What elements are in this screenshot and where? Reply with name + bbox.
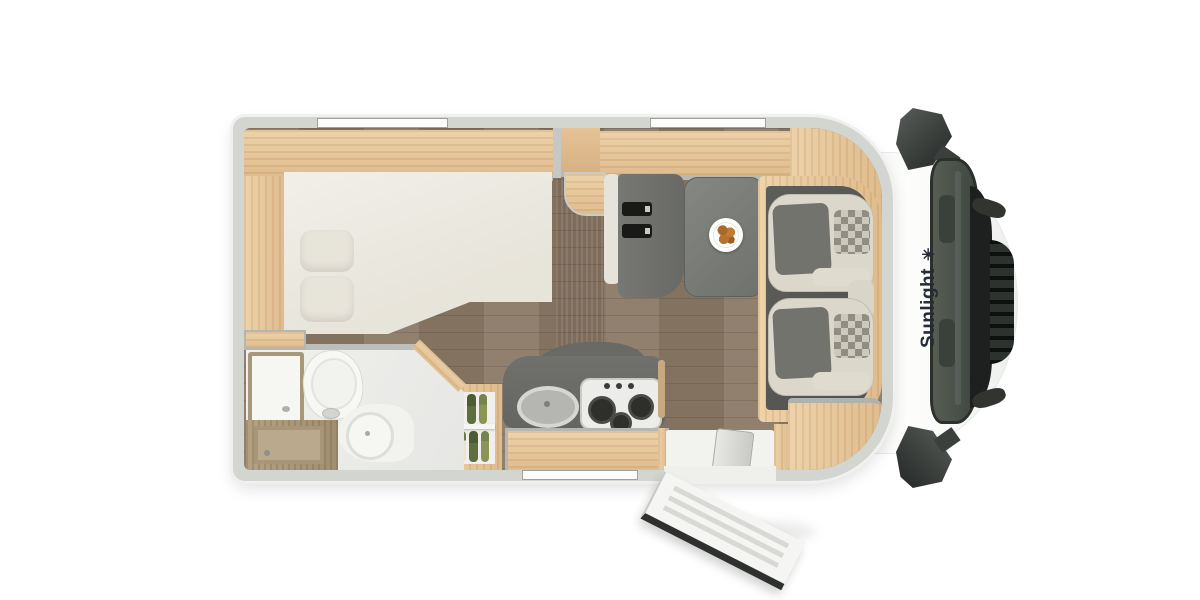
overhead-cabinet-dinette bbox=[600, 131, 790, 180]
seat-left-back-panel bbox=[772, 203, 832, 276]
kitchen-window bbox=[522, 470, 638, 480]
shower-drain bbox=[264, 450, 270, 456]
sink-drain bbox=[544, 401, 550, 407]
bed-pillow-2 bbox=[300, 276, 354, 322]
bathroom-door-handle bbox=[282, 406, 290, 412]
floorplan-canvas: Sunlight ✳ bbox=[0, 0, 1200, 600]
brand-lettering: Sunlight ✳ bbox=[917, 248, 941, 348]
bed-pillow-1 bbox=[300, 230, 354, 272]
interior-floor bbox=[244, 128, 882, 470]
overhead-locker-small bbox=[561, 128, 600, 177]
toilet-seat bbox=[311, 358, 357, 410]
kale-2 bbox=[469, 431, 478, 462]
windshield-reflection bbox=[955, 171, 961, 405]
brand-label: Sunlight bbox=[918, 268, 940, 348]
shower-tray bbox=[254, 426, 324, 464]
dashboard-hint-1 bbox=[939, 195, 955, 243]
herb-1 bbox=[479, 394, 487, 424]
cowl-panel bbox=[970, 186, 992, 408]
tv-shelf-bracket bbox=[564, 172, 606, 216]
seatbelt-1 bbox=[622, 202, 652, 216]
sunlight-flower-logo-icon: ✳ bbox=[919, 247, 939, 261]
round-sink bbox=[517, 386, 579, 428]
seat-right-headrest-checker bbox=[834, 314, 870, 358]
seatbelt-2 bbox=[622, 224, 652, 238]
counter-support-pole bbox=[658, 360, 665, 418]
hob-knob-1 bbox=[604, 383, 610, 389]
washbasin-drain bbox=[365, 431, 370, 436]
kitchen-drawer bbox=[505, 428, 669, 470]
partition-wall-bed bbox=[553, 128, 561, 178]
dashboard-hint-2 bbox=[939, 319, 955, 367]
seat-left-headrest-checker bbox=[834, 210, 870, 254]
hob-knob-2 bbox=[616, 383, 622, 389]
bathroom-vanity-corner bbox=[244, 330, 306, 350]
entry-door-open bbox=[640, 471, 805, 590]
entry-step bbox=[711, 428, 754, 470]
toilet-flush-button bbox=[322, 408, 340, 419]
rear-wardrobe-band bbox=[244, 176, 289, 345]
seat-right-back-panel bbox=[772, 307, 832, 380]
washbasin bbox=[346, 412, 394, 460]
kale-1 bbox=[467, 394, 476, 424]
entry-partition-left bbox=[658, 428, 666, 470]
hob-knob-3 bbox=[628, 383, 634, 389]
seat-right-armrest bbox=[812, 372, 870, 390]
plate-of-croissants bbox=[709, 218, 743, 252]
entry-wood-floor-panel bbox=[788, 398, 882, 470]
roof-window-dinette bbox=[650, 118, 766, 128]
herb-2 bbox=[481, 431, 489, 462]
hob-burner-right bbox=[628, 394, 654, 420]
roof-window-bed bbox=[317, 118, 448, 128]
front-grille bbox=[990, 240, 1014, 364]
door-tread-2 bbox=[668, 495, 784, 558]
